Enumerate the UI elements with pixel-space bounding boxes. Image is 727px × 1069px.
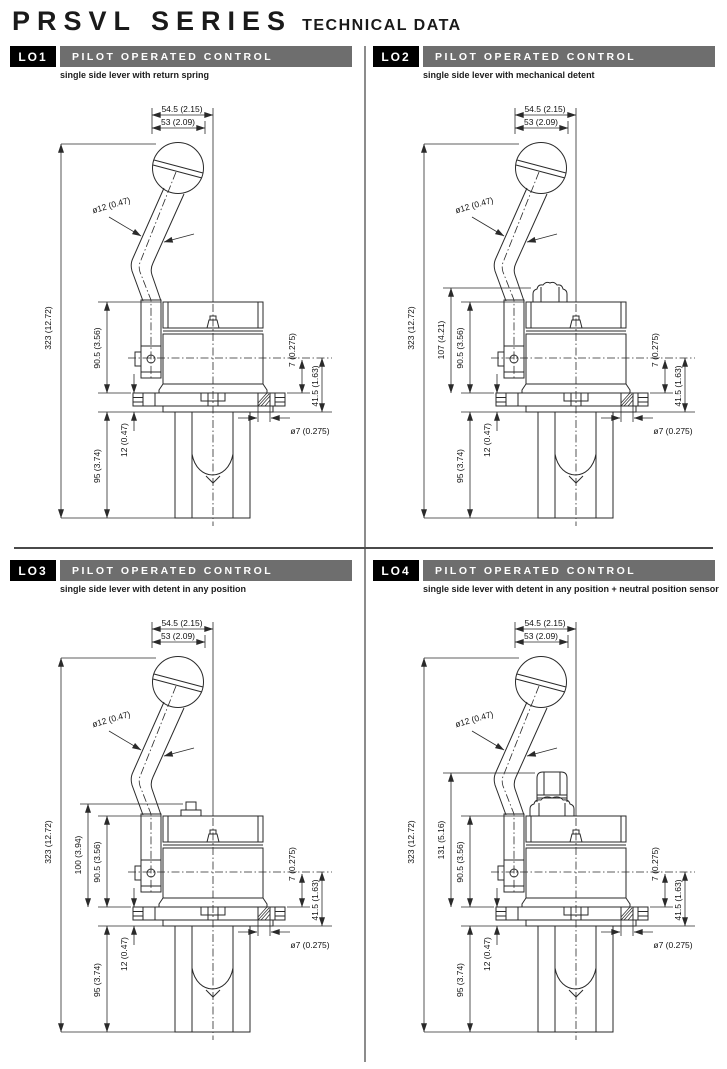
panel-title-bar: PILOT OPERATED CONTROL xyxy=(60,560,352,581)
lever-clamp xyxy=(135,814,161,892)
mounting-hole xyxy=(621,393,633,406)
lever-knob xyxy=(516,657,567,708)
dim-flange-thickness: 7 (0.275) xyxy=(650,847,660,881)
dim-below-plate-height: 95 (3.74) xyxy=(92,963,102,997)
lower-body xyxy=(175,412,250,518)
centerlines xyxy=(128,172,332,526)
dim-lever-diameter: ø12 (0.47) xyxy=(91,195,132,215)
mounting-flange xyxy=(133,393,285,412)
centerlines xyxy=(128,686,332,1040)
panel-description: single side lever with detent in any pos… xyxy=(423,584,715,594)
lever-knob xyxy=(516,143,567,194)
dim-knob-width: 53 (2.09) xyxy=(524,631,558,641)
centerlines xyxy=(491,686,695,1040)
dim-body-height: 90.5 (3.56) xyxy=(92,841,102,882)
panel: LO2 PILOT OPERATED CONTROL single side l… xyxy=(373,46,715,551)
panel-title: PILOT OPERATED CONTROL xyxy=(435,51,636,63)
technical-drawing: 54.5 (2.15) 53 (2.09) ø12 (0.47) 323 (12… xyxy=(10,602,352,1042)
dim-recess-depth: 12 (0.47) xyxy=(482,937,492,971)
dim-mounting-hole-diameter: ø7 (0.275) xyxy=(290,940,329,950)
page-subtitle: TECHNICAL DATA xyxy=(302,17,462,35)
dim-lever-top-width: 54.5 (2.15) xyxy=(161,618,202,628)
dim-lever-diameter: ø12 (0.47) xyxy=(91,709,132,729)
panel-title-bar: PILOT OPERATED CONTROL xyxy=(423,46,715,67)
technical-drawing: 54.5 (2.15) 53 (2.09) ø12 (0.47) 323 (12… xyxy=(373,602,715,1042)
mounting-hole xyxy=(258,393,270,406)
dim-axis-to-base: 41.5 (1.63) xyxy=(673,365,683,406)
dim-body-height: 90.5 (3.56) xyxy=(455,841,465,882)
dim-extra-height: 100 (3.94) xyxy=(73,835,83,874)
panel-description: single side lever with return spring xyxy=(60,70,352,80)
dim-extra-height: 107 (4.21) xyxy=(436,320,446,359)
dim-flange-thickness: 7 (0.275) xyxy=(650,333,660,367)
dim-lever-top-width: 54.5 (2.15) xyxy=(161,104,202,114)
dim-recess-depth: 12 (0.47) xyxy=(119,937,129,971)
lever-knob xyxy=(153,143,204,194)
centerlines xyxy=(491,172,695,526)
dim-below-plate-height: 95 (3.74) xyxy=(455,963,465,997)
dim-extra-height: 131 (5.16) xyxy=(436,820,446,859)
dimension-labels: 54.5 (2.15) 53 (2.09) ø12 (0.47) 323 (12… xyxy=(406,104,693,483)
panel-description: single side lever with mechanical detent xyxy=(423,70,715,80)
panel-title: PILOT OPERATED CONTROL xyxy=(435,565,636,577)
lever xyxy=(131,188,184,301)
mounting-flange xyxy=(496,907,648,926)
dim-mounting-hole-diameter: ø7 (0.275) xyxy=(653,940,692,950)
dim-axis-to-base: 41.5 (1.63) xyxy=(673,879,683,920)
detent-adjuster-bolt xyxy=(181,802,201,816)
mounting-hole xyxy=(258,907,270,920)
lever-knob xyxy=(153,657,204,708)
panel-code: LO2 xyxy=(373,46,419,67)
panel: LO3 PILOT OPERATED CONTROL single side l… xyxy=(10,560,352,1065)
neutral-position-sensor xyxy=(530,772,574,816)
mechanical-detent-cap xyxy=(533,282,567,302)
page-title: PRSVL SERIES xyxy=(12,6,292,37)
dim-lever-diameter: ø12 (0.47) xyxy=(454,709,495,729)
dim-recess-depth: 12 (0.47) xyxy=(482,423,492,457)
panel-title-bar: PILOT OPERATED CONTROL xyxy=(60,46,352,67)
dim-axis-to-base: 41.5 (1.63) xyxy=(310,365,320,406)
dimension-labels: 54.5 (2.15) 53 (2.09) ø12 (0.47) 323 (12… xyxy=(43,104,330,483)
dim-below-plate-height: 95 (3.74) xyxy=(455,449,465,483)
dim-knob-width: 53 (2.09) xyxy=(524,117,558,127)
lever-clamp xyxy=(135,300,161,378)
panel-description: single side lever with detent in any pos… xyxy=(60,584,352,594)
dim-lever-diameter: ø12 (0.47) xyxy=(454,195,495,215)
dim-overall-height: 323 (12.72) xyxy=(406,820,416,864)
dim-flange-thickness: 7 (0.275) xyxy=(287,847,297,881)
dim-overall-height: 323 (12.72) xyxy=(406,306,416,350)
panel-header: LO4 PILOT OPERATED CONTROL xyxy=(373,560,715,581)
technical-drawing: 54.5 (2.15) 53 (2.09) ø12 (0.47) 323 (12… xyxy=(373,88,715,528)
lever xyxy=(494,188,547,301)
column-divider xyxy=(364,46,366,1062)
panel: LO1 PILOT OPERATED CONTROL single side l… xyxy=(10,46,352,551)
panel-title-bar: PILOT OPERATED CONTROL xyxy=(423,560,715,581)
panel-header: LO2 PILOT OPERATED CONTROL xyxy=(373,46,715,67)
dim-mounting-hole-diameter: ø7 (0.275) xyxy=(290,426,329,436)
dim-body-height: 90.5 (3.56) xyxy=(455,327,465,368)
dim-overall-height: 323 (12.72) xyxy=(43,306,53,350)
dim-lever-top-width: 54.5 (2.15) xyxy=(524,618,565,628)
panel-code: LO3 xyxy=(10,560,56,581)
panel: LO4 PILOT OPERATED CONTROL single side l… xyxy=(373,560,715,1065)
lever-clamp xyxy=(498,300,524,378)
lower-body xyxy=(538,926,613,1032)
panel-code: LO4 xyxy=(373,560,419,581)
page-title-row: PRSVL SERIES TECHNICAL DATA xyxy=(12,6,462,37)
mounting-flange xyxy=(496,393,648,412)
dim-below-plate-height: 95 (3.74) xyxy=(92,449,102,483)
dim-knob-width: 53 (2.09) xyxy=(161,631,195,641)
dimension-labels: 54.5 (2.15) 53 (2.09) ø12 (0.47) 323 (12… xyxy=(406,618,693,997)
mounting-hole xyxy=(621,907,633,920)
dim-lever-top-width: 54.5 (2.15) xyxy=(524,104,565,114)
dim-flange-thickness: 7 (0.275) xyxy=(287,333,297,367)
lever xyxy=(131,702,184,815)
dim-body-height: 90.5 (3.56) xyxy=(92,327,102,368)
dim-mounting-hole-diameter: ø7 (0.275) xyxy=(653,426,692,436)
dim-axis-to-base: 41.5 (1.63) xyxy=(310,879,320,920)
technical-drawing: 54.5 (2.15) 53 (2.09) ø12 (0.47) 323 (12… xyxy=(10,88,352,528)
mounting-flange xyxy=(133,907,285,926)
dim-recess-depth: 12 (0.47) xyxy=(119,423,129,457)
dim-overall-height: 323 (12.72) xyxy=(43,820,53,864)
panel-title: PILOT OPERATED CONTROL xyxy=(72,565,273,577)
dim-knob-width: 53 (2.09) xyxy=(161,117,195,127)
panel-code: LO1 xyxy=(10,46,56,67)
panel-title: PILOT OPERATED CONTROL xyxy=(72,51,273,63)
panel-header: LO1 PILOT OPERATED CONTROL xyxy=(10,46,352,67)
panel-header: LO3 PILOT OPERATED CONTROL xyxy=(10,560,352,581)
lower-body xyxy=(538,412,613,518)
lever-clamp xyxy=(498,814,524,892)
lower-body xyxy=(175,926,250,1032)
